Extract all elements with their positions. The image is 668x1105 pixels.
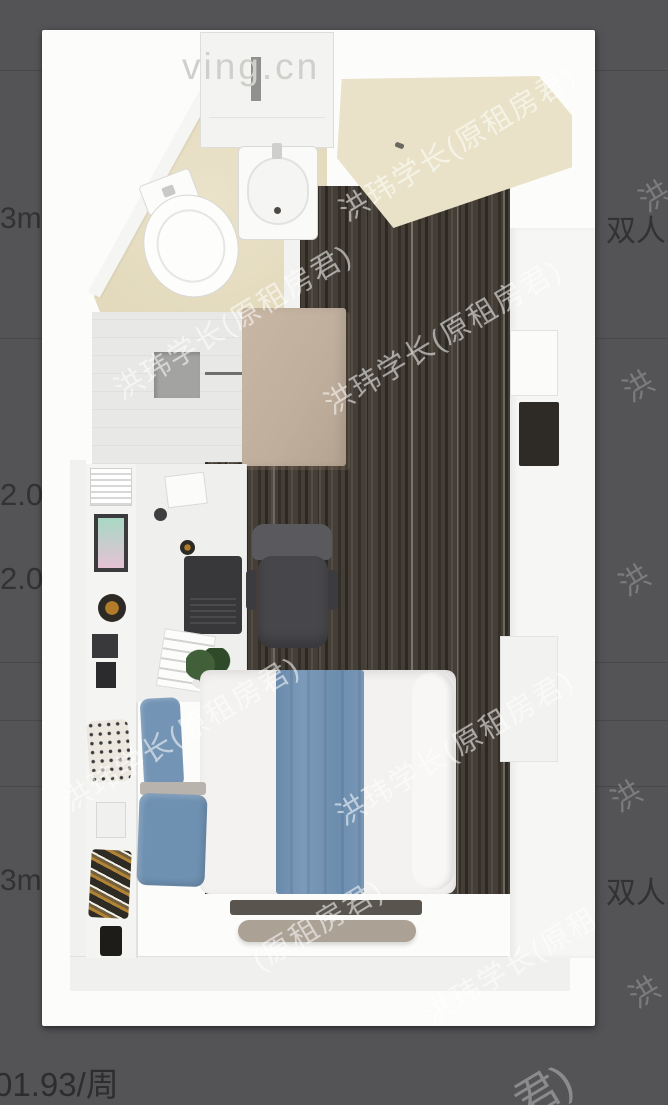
wall-shelf xyxy=(510,330,558,396)
desk-speaker xyxy=(154,508,167,521)
chair-seat xyxy=(258,556,328,648)
bottle-stack xyxy=(88,849,132,919)
background-watermark-fragment: 洪 xyxy=(619,963,667,1016)
laptop xyxy=(184,556,242,634)
site-watermark: ving.cn xyxy=(182,46,320,88)
desk xyxy=(136,464,247,702)
sink-drain xyxy=(274,207,281,214)
desk-bowl xyxy=(180,540,195,555)
sink-basin xyxy=(247,157,309,225)
dark-bottle xyxy=(100,926,122,956)
book-stack xyxy=(90,468,132,506)
photo-frame xyxy=(94,514,128,572)
image-viewer-screen: 3m² 双人入 2.0 2.0 3m² 双人入 01.93/周 洪 洪 洪 洪 … xyxy=(0,0,668,1105)
vanity-shelf-line xyxy=(209,117,325,118)
photo-picture xyxy=(98,518,124,568)
background-watermark-fragment: 君) xyxy=(500,1045,583,1105)
sink-faucet xyxy=(272,143,282,159)
black-frame xyxy=(92,634,118,658)
occupancy-label-fragment: 双人入 xyxy=(606,868,668,912)
sink xyxy=(238,146,318,240)
price-fragment: 2.0 xyxy=(0,561,48,597)
floorplan-image[interactable]: ving.cn 洪玮学长(原租房君) 洪玮学长(原租房君) 洪玮学长(原租房君)… xyxy=(42,30,595,1026)
background-watermark-fragment: 洪 xyxy=(609,551,657,604)
left-wall xyxy=(70,460,86,960)
storage-box xyxy=(96,802,126,838)
chair-armrest xyxy=(328,570,338,610)
laptop-keyboard xyxy=(190,598,236,626)
tv-screen xyxy=(519,402,559,466)
background-watermark-fragment: 洪 xyxy=(601,767,649,820)
price-per-week-fragment: 01.93/周 xyxy=(0,1058,174,1105)
office-chair xyxy=(246,522,338,668)
chair-armrest xyxy=(246,570,256,610)
shelf-column xyxy=(86,464,138,958)
chair-backrest xyxy=(252,524,332,560)
price-fragment: 2.0 xyxy=(0,477,48,513)
decor-bowl xyxy=(98,594,126,622)
pillow xyxy=(136,793,207,887)
black-frame xyxy=(96,662,116,688)
area-label-fragment: 3m² xyxy=(0,202,44,236)
note-pad xyxy=(164,472,208,509)
background-watermark-fragment: 洪 xyxy=(613,357,661,410)
toilet-seat xyxy=(146,199,236,292)
area-label-fragment: 3m² xyxy=(0,864,44,898)
